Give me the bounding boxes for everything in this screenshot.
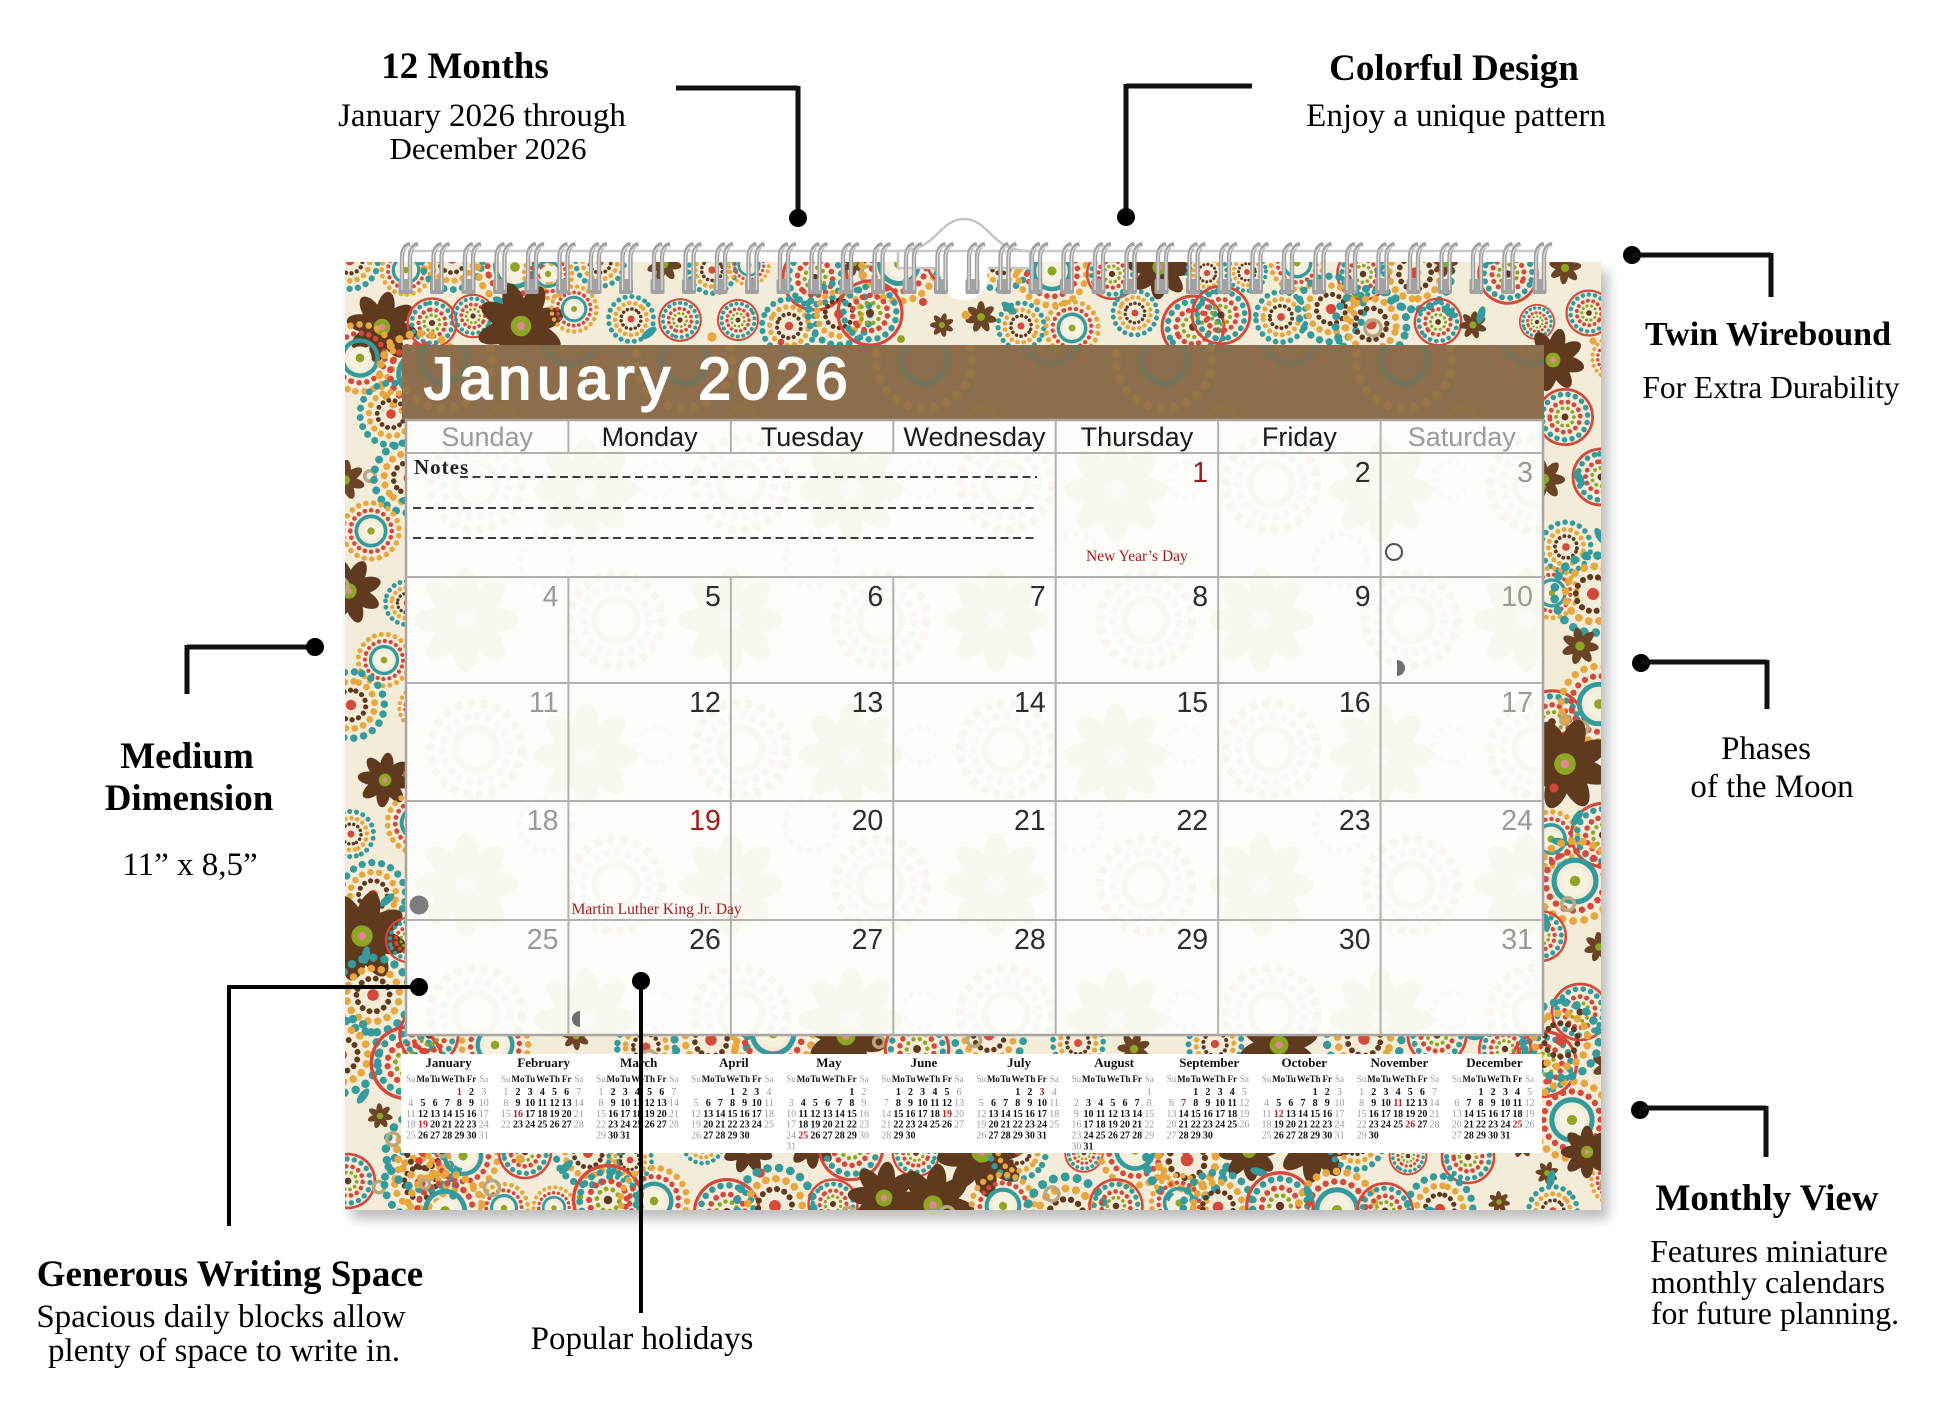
svg-text:9: 9 (1491, 1098, 1496, 1109)
svg-text:11: 11 (1096, 1109, 1105, 1120)
svg-text:24: 24 (752, 1120, 762, 1131)
svg-text:15: 15 (847, 1109, 857, 1120)
svg-text:20: 20 (1120, 1120, 1130, 1131)
svg-text:9: 9 (516, 1098, 521, 1109)
svg-text:30: 30 (1025, 1131, 1035, 1142)
svg-text:29: 29 (1176, 924, 1208, 956)
svg-text:10: 10 (1037, 1098, 1047, 1109)
svg-text:15: 15 (596, 1109, 606, 1120)
svg-text:Friday: Friday (1262, 422, 1338, 452)
svg-text:27: 27 (430, 1131, 440, 1142)
svg-text:12: 12 (1525, 1098, 1535, 1109)
svg-text:Fr: Fr (1132, 1074, 1142, 1084)
svg-text:Wednesday: Wednesday (903, 422, 1046, 452)
svg-text:24: 24 (1501, 805, 1533, 837)
svg-text:18: 18 (1262, 1120, 1272, 1131)
svg-text:15: 15 (1176, 687, 1208, 719)
svg-text:10: 10 (1501, 581, 1533, 613)
svg-text:29: 29 (1144, 1131, 1154, 1142)
svg-text:Monday: Monday (602, 422, 699, 452)
svg-text:7: 7 (445, 1098, 450, 1109)
svg-text:17: 17 (1334, 1109, 1344, 1120)
svg-text:Fr: Fr (1418, 1074, 1428, 1084)
svg-text:Th: Th (1024, 1074, 1035, 1084)
svg-text:6: 6 (1420, 1087, 1425, 1098)
svg-text:23: 23 (608, 1120, 618, 1131)
svg-text:15: 15 (501, 1109, 511, 1120)
svg-text:Su: Su (596, 1074, 606, 1084)
svg-text:Saturday: Saturday (1408, 422, 1517, 452)
svg-text:28: 28 (1179, 1131, 1189, 1142)
svg-text:Mo: Mo (1367, 1074, 1380, 1084)
svg-text:21: 21 (669, 1109, 679, 1120)
svg-text:December 2026: December 2026 (389, 131, 586, 166)
svg-text:17: 17 (1084, 1120, 1094, 1131)
svg-text:28: 28 (1430, 1120, 1440, 1131)
svg-text:3: 3 (528, 1087, 533, 1098)
svg-text:23: 23 (906, 1120, 916, 1131)
svg-text:13: 13 (954, 1098, 964, 1109)
svg-text:28: 28 (1464, 1131, 1474, 1142)
svg-text:17: 17 (620, 1109, 630, 1120)
svg-text:13: 13 (988, 1109, 998, 1120)
svg-text:January 2026 through: January 2026 through (338, 98, 626, 134)
svg-text:6: 6 (706, 1098, 711, 1109)
svg-text:21: 21 (1298, 1120, 1308, 1131)
svg-text:27: 27 (562, 1120, 572, 1131)
svg-text:We: We (1202, 1074, 1215, 1084)
svg-text:21: 21 (1464, 1120, 1474, 1131)
svg-text:12: 12 (942, 1098, 952, 1109)
svg-text:19: 19 (810, 1120, 820, 1131)
svg-text:6: 6 (1288, 1098, 1293, 1109)
svg-text:17: 17 (1037, 1109, 1047, 1120)
svg-text:Su: Su (1262, 1074, 1272, 1084)
svg-text:22: 22 (1013, 1120, 1023, 1131)
svg-text:6: 6 (825, 1098, 830, 1109)
svg-text:23: 23 (859, 1120, 869, 1131)
svg-text:Th: Th (1215, 1074, 1226, 1084)
svg-text:20: 20 (1417, 1109, 1427, 1120)
svg-text:We: We (1107, 1074, 1120, 1084)
svg-text:20: 20 (430, 1120, 440, 1131)
svg-text:Fr: Fr (1323, 1074, 1333, 1084)
svg-text:28: 28 (835, 1131, 845, 1142)
svg-text:Mo: Mo (512, 1074, 525, 1084)
svg-text:26: 26 (1108, 1131, 1118, 1142)
svg-text:18: 18 (1096, 1120, 1106, 1131)
svg-text:Su: Su (1072, 1074, 1082, 1084)
svg-text:25: 25 (930, 1120, 940, 1131)
svg-text:20: 20 (1166, 1120, 1176, 1131)
svg-text:17: 17 (1381, 1109, 1391, 1120)
svg-text:Sa: Sa (1525, 1074, 1534, 1084)
svg-text:25: 25 (1262, 1131, 1272, 1142)
svg-text:7: 7 (576, 1087, 581, 1098)
svg-text:26: 26 (1239, 1120, 1249, 1131)
svg-text:26: 26 (691, 1131, 701, 1142)
svg-text:10: 10 (1381, 1098, 1391, 1109)
svg-text:7: 7 (837, 1098, 842, 1109)
svg-text:12: 12 (810, 1109, 820, 1120)
svg-text:20: 20 (1286, 1120, 1296, 1131)
svg-text:11: 11 (538, 1098, 547, 1109)
svg-text:24: 24 (1037, 1120, 1047, 1131)
svg-text:26: 26 (942, 1120, 952, 1131)
svg-text:18: 18 (1227, 1109, 1237, 1120)
svg-text:4: 4 (1515, 1087, 1520, 1098)
svg-text:13: 13 (1120, 1109, 1130, 1120)
svg-text:Tu: Tu (715, 1074, 725, 1084)
svg-text:23: 23 (1369, 1120, 1379, 1131)
svg-text:Su: Su (406, 1074, 416, 1084)
svg-text:Mo: Mo (416, 1074, 429, 1084)
svg-text:7: 7 (1432, 1087, 1437, 1098)
svg-text:16: 16 (1339, 687, 1371, 719)
svg-text:22: 22 (893, 1120, 903, 1131)
svg-text:1: 1 (1479, 1087, 1484, 1098)
svg-text:November: November (1370, 1055, 1428, 1070)
svg-text:4: 4 (1230, 1087, 1235, 1098)
svg-text:10: 10 (1500, 1098, 1510, 1109)
svg-text:Sa: Sa (1145, 1074, 1154, 1084)
svg-text:Notes: Notes (414, 455, 469, 479)
svg-text:27: 27 (1120, 1131, 1130, 1142)
svg-text:3: 3 (481, 1087, 486, 1098)
svg-text:20: 20 (657, 1109, 667, 1120)
svg-text:27: 27 (954, 1120, 964, 1131)
svg-text:16: 16 (513, 1109, 523, 1120)
svg-text:5: 5 (1527, 1087, 1532, 1098)
svg-text:28: 28 (442, 1131, 452, 1142)
svg-text:28: 28 (1014, 924, 1046, 956)
svg-text:15: 15 (1310, 1109, 1320, 1120)
svg-text:5: 5 (944, 1087, 949, 1098)
svg-text:23: 23 (1203, 1120, 1213, 1131)
svg-text:7: 7 (718, 1098, 723, 1109)
svg-text:3: 3 (623, 1087, 628, 1098)
svg-text:13: 13 (562, 1098, 572, 1109)
svg-text:3: 3 (1383, 1087, 1388, 1098)
svg-text:18: 18 (798, 1120, 808, 1131)
svg-text:25: 25 (406, 1131, 416, 1142)
svg-text:7: 7 (1466, 1098, 1471, 1109)
svg-text:29: 29 (893, 1131, 903, 1142)
svg-text:24: 24 (479, 1120, 489, 1131)
svg-text:26: 26 (1274, 1131, 1284, 1142)
svg-text:Fr: Fr (467, 1074, 477, 1084)
svg-text:13: 13 (657, 1098, 667, 1109)
svg-text:12: 12 (976, 1109, 986, 1120)
svg-text:12: 12 (1108, 1109, 1118, 1120)
svg-text:30: 30 (740, 1131, 750, 1142)
svg-text:Tu: Tu (1381, 1074, 1391, 1084)
svg-text:Su: Su (501, 1074, 511, 1084)
svg-text:2: 2 (1074, 1098, 1079, 1109)
svg-text:21: 21 (1179, 1120, 1189, 1131)
svg-text:8: 8 (896, 1098, 901, 1109)
svg-text:31: 31 (479, 1131, 489, 1142)
svg-text:24: 24 (1500, 1120, 1510, 1131)
svg-text:24: 24 (620, 1120, 630, 1131)
svg-text:11: 11 (1393, 1098, 1402, 1109)
svg-text:Fr: Fr (847, 1074, 857, 1084)
svg-text:18: 18 (930, 1109, 940, 1120)
svg-text:Su: Su (1452, 1074, 1462, 1084)
svg-text:9: 9 (1027, 1098, 1032, 1109)
svg-text:Monthly View: Monthly View (1655, 1178, 1878, 1219)
svg-text:We: We (821, 1074, 834, 1084)
svg-text:2: 2 (742, 1087, 747, 1098)
svg-text:1: 1 (1359, 1087, 1364, 1098)
svg-text:9: 9 (1074, 1109, 1079, 1120)
svg-text:13: 13 (1452, 1109, 1462, 1120)
svg-text:20: 20 (1452, 1120, 1462, 1131)
svg-text:9: 9 (469, 1098, 474, 1109)
svg-text:21: 21 (1132, 1120, 1142, 1131)
svg-text:28: 28 (1132, 1131, 1142, 1142)
svg-text:28: 28 (881, 1131, 891, 1142)
svg-text:monthly calendars: monthly calendars (1651, 1265, 1885, 1300)
svg-text:9: 9 (611, 1098, 616, 1109)
svg-text:14: 14 (1014, 687, 1046, 719)
svg-text:Fr: Fr (752, 1074, 762, 1084)
svg-text:25: 25 (1512, 1120, 1522, 1131)
svg-text:2: 2 (611, 1087, 616, 1098)
svg-text:October: October (1282, 1055, 1328, 1070)
svg-text:4: 4 (543, 581, 559, 613)
svg-text:3: 3 (789, 1098, 794, 1109)
svg-text:18: 18 (537, 1109, 547, 1120)
svg-text:15: 15 (1476, 1109, 1486, 1120)
svg-text:April: April (719, 1055, 749, 1070)
svg-text:27: 27 (1286, 1131, 1296, 1142)
svg-text:22: 22 (454, 1120, 464, 1131)
svg-text:31: 31 (1501, 924, 1533, 956)
svg-text:11” x 8,5”: 11” x 8,5” (122, 847, 257, 883)
svg-text:23: 23 (1339, 805, 1371, 837)
svg-text:8: 8 (1192, 581, 1208, 613)
svg-text:17: 17 (525, 1109, 535, 1120)
svg-text:Phases: Phases (1721, 731, 1811, 767)
svg-text:13: 13 (1166, 1109, 1176, 1120)
svg-text:1: 1 (896, 1087, 901, 1098)
svg-text:28: 28 (715, 1131, 725, 1142)
svg-text:27: 27 (1166, 1131, 1176, 1142)
svg-text:29: 29 (1191, 1131, 1201, 1142)
svg-text:29: 29 (1476, 1131, 1486, 1142)
svg-text:13: 13 (823, 1109, 833, 1120)
svg-text:for future planning.: for future planning. (1651, 1296, 1899, 1331)
svg-text:1: 1 (730, 1087, 735, 1098)
svg-text:Popular holidays: Popular holidays (531, 1321, 754, 1357)
svg-text:3: 3 (1086, 1098, 1091, 1109)
svg-text:12 Months: 12 Months (381, 46, 549, 87)
svg-text:5: 5 (420, 1098, 425, 1109)
svg-text:14: 14 (835, 1109, 845, 1120)
svg-text:Tu: Tu (1286, 1074, 1296, 1084)
svg-text:9: 9 (908, 1098, 913, 1109)
svg-text:26: 26 (810, 1131, 820, 1142)
svg-text:16: 16 (859, 1109, 869, 1120)
svg-text:Fr: Fr (1037, 1074, 1047, 1084)
svg-text:2: 2 (1325, 1087, 1330, 1098)
svg-text:We: We (441, 1074, 454, 1084)
svg-text:15: 15 (893, 1109, 903, 1120)
svg-text:2: 2 (1027, 1087, 1032, 1098)
svg-text:10: 10 (479, 1098, 489, 1109)
svg-text:5: 5 (552, 1087, 557, 1098)
svg-text:January 2026: January 2026 (424, 346, 854, 412)
svg-text:23: 23 (1322, 1120, 1332, 1131)
svg-text:29: 29 (1013, 1131, 1023, 1142)
svg-text:30: 30 (1488, 1131, 1498, 1142)
svg-text:22: 22 (728, 1120, 738, 1131)
svg-text:22: 22 (596, 1120, 606, 1131)
svg-text:31: 31 (786, 1142, 796, 1153)
svg-text:January: January (425, 1055, 472, 1070)
svg-text:1: 1 (1015, 1087, 1020, 1098)
svg-text:27: 27 (1417, 1120, 1427, 1131)
svg-text:12: 12 (691, 1109, 701, 1120)
svg-text:22: 22 (1357, 1120, 1367, 1131)
svg-text:6: 6 (659, 1087, 664, 1098)
svg-text:4: 4 (1052, 1087, 1057, 1098)
svg-text:19: 19 (1239, 1109, 1249, 1120)
svg-text:13: 13 (1417, 1098, 1427, 1109)
svg-text:12: 12 (1239, 1098, 1249, 1109)
svg-text:Mo: Mo (797, 1074, 810, 1084)
svg-text:16: 16 (1025, 1109, 1035, 1120)
svg-text:5: 5 (694, 1098, 699, 1109)
svg-text:Su: Su (691, 1074, 701, 1084)
svg-text:24: 24 (1215, 1120, 1225, 1131)
svg-text:21: 21 (835, 1120, 845, 1131)
svg-text:27: 27 (1452, 1131, 1462, 1142)
svg-text:12: 12 (1274, 1109, 1284, 1120)
svg-text:25: 25 (798, 1131, 808, 1142)
svg-text:Tu: Tu (525, 1074, 535, 1084)
svg-text:14: 14 (1298, 1109, 1308, 1120)
svg-text:August: August (1094, 1055, 1134, 1070)
svg-text:24: 24 (525, 1120, 535, 1131)
svg-text:5: 5 (979, 1098, 984, 1109)
svg-text:Tuesday: Tuesday (761, 422, 864, 452)
svg-text:Tu: Tu (620, 1074, 630, 1084)
svg-text:7: 7 (671, 1087, 676, 1098)
svg-text:14: 14 (1464, 1109, 1474, 1120)
svg-text:16: 16 (1369, 1109, 1379, 1120)
svg-text:8: 8 (1479, 1098, 1484, 1109)
svg-text:Spacious daily blocks allow: Spacious daily blocks allow (36, 1299, 406, 1335)
svg-text:We: We (536, 1074, 549, 1084)
svg-text:10: 10 (752, 1098, 762, 1109)
svg-text:Sa: Sa (764, 1074, 773, 1084)
svg-text:12: 12 (645, 1098, 655, 1109)
svg-text:15: 15 (1013, 1109, 1023, 1120)
svg-text:Features miniature: Features miniature (1650, 1234, 1888, 1269)
svg-text:19: 19 (976, 1120, 986, 1131)
svg-text:Sunday: Sunday (441, 422, 533, 452)
svg-text:16: 16 (1071, 1120, 1081, 1131)
svg-text:15: 15 (454, 1109, 464, 1120)
svg-text:We: We (1012, 1074, 1025, 1084)
svg-text:Su: Su (977, 1074, 987, 1084)
svg-text:20: 20 (988, 1120, 998, 1131)
svg-text:19: 19 (1274, 1120, 1284, 1131)
svg-text:11: 11 (529, 687, 559, 719)
svg-text:16: 16 (1203, 1109, 1213, 1120)
svg-text:Tu: Tu (1001, 1074, 1011, 1084)
svg-text:17: 17 (918, 1109, 928, 1120)
svg-text:4: 4 (408, 1098, 413, 1109)
svg-text:Sa: Sa (955, 1074, 964, 1084)
svg-text:4: 4 (932, 1087, 937, 1098)
svg-text:3: 3 (754, 1087, 759, 1098)
svg-text:27: 27 (657, 1120, 667, 1131)
svg-text:May: May (816, 1055, 842, 1070)
svg-text:17: 17 (752, 1109, 762, 1120)
svg-text:30: 30 (608, 1131, 618, 1142)
svg-text:31: 31 (1500, 1131, 1510, 1142)
svg-text:Mo: Mo (607, 1074, 620, 1084)
svg-text:16: 16 (740, 1109, 750, 1120)
svg-text:Sa: Sa (1240, 1074, 1249, 1084)
svg-text:17: 17 (786, 1120, 796, 1131)
svg-text:Tu: Tu (1476, 1074, 1486, 1084)
svg-text:10: 10 (620, 1098, 630, 1109)
svg-text:7: 7 (1181, 1098, 1186, 1109)
svg-text:3: 3 (920, 1087, 925, 1098)
svg-text:20: 20 (823, 1120, 833, 1131)
svg-text:30: 30 (1322, 1131, 1332, 1142)
svg-text:Mo: Mo (892, 1074, 905, 1084)
svg-text:31: 31 (1334, 1131, 1344, 1142)
svg-text:25: 25 (1049, 1120, 1059, 1131)
svg-text:18: 18 (764, 1109, 774, 1120)
svg-text:14: 14 (881, 1109, 891, 1120)
svg-text:8: 8 (503, 1098, 508, 1109)
svg-text:We: We (1297, 1074, 1310, 1084)
svg-text:16: 16 (1322, 1109, 1332, 1120)
svg-text:11: 11 (1049, 1098, 1059, 1109)
svg-text:Th: Th (1310, 1074, 1321, 1084)
svg-text:24: 24 (1381, 1120, 1391, 1131)
svg-text:9: 9 (1205, 1098, 1210, 1109)
svg-text:5: 5 (705, 581, 721, 613)
svg-text:5: 5 (1408, 1087, 1413, 1098)
svg-text:14: 14 (1179, 1109, 1189, 1120)
svg-text:Tu: Tu (1096, 1074, 1106, 1084)
svg-text:27: 27 (852, 924, 884, 956)
svg-text:8: 8 (849, 1098, 854, 1109)
svg-text:5: 5 (1110, 1098, 1115, 1109)
svg-text:Mo: Mo (1177, 1074, 1190, 1084)
svg-text:6: 6 (433, 1098, 438, 1109)
svg-text:Tu: Tu (430, 1074, 440, 1084)
svg-text:23: 23 (467, 1120, 477, 1131)
svg-text:8: 8 (598, 1098, 603, 1109)
svg-text:12: 12 (689, 687, 721, 719)
svg-text:23: 23 (740, 1120, 750, 1131)
svg-text:5: 5 (813, 1098, 818, 1109)
svg-text:20: 20 (703, 1120, 713, 1131)
svg-text:15: 15 (1357, 1109, 1367, 1120)
svg-text:Fr: Fr (942, 1074, 952, 1084)
svg-text:7: 7 (884, 1098, 889, 1109)
svg-text:27: 27 (703, 1131, 713, 1142)
svg-text:16: 16 (608, 1109, 618, 1120)
